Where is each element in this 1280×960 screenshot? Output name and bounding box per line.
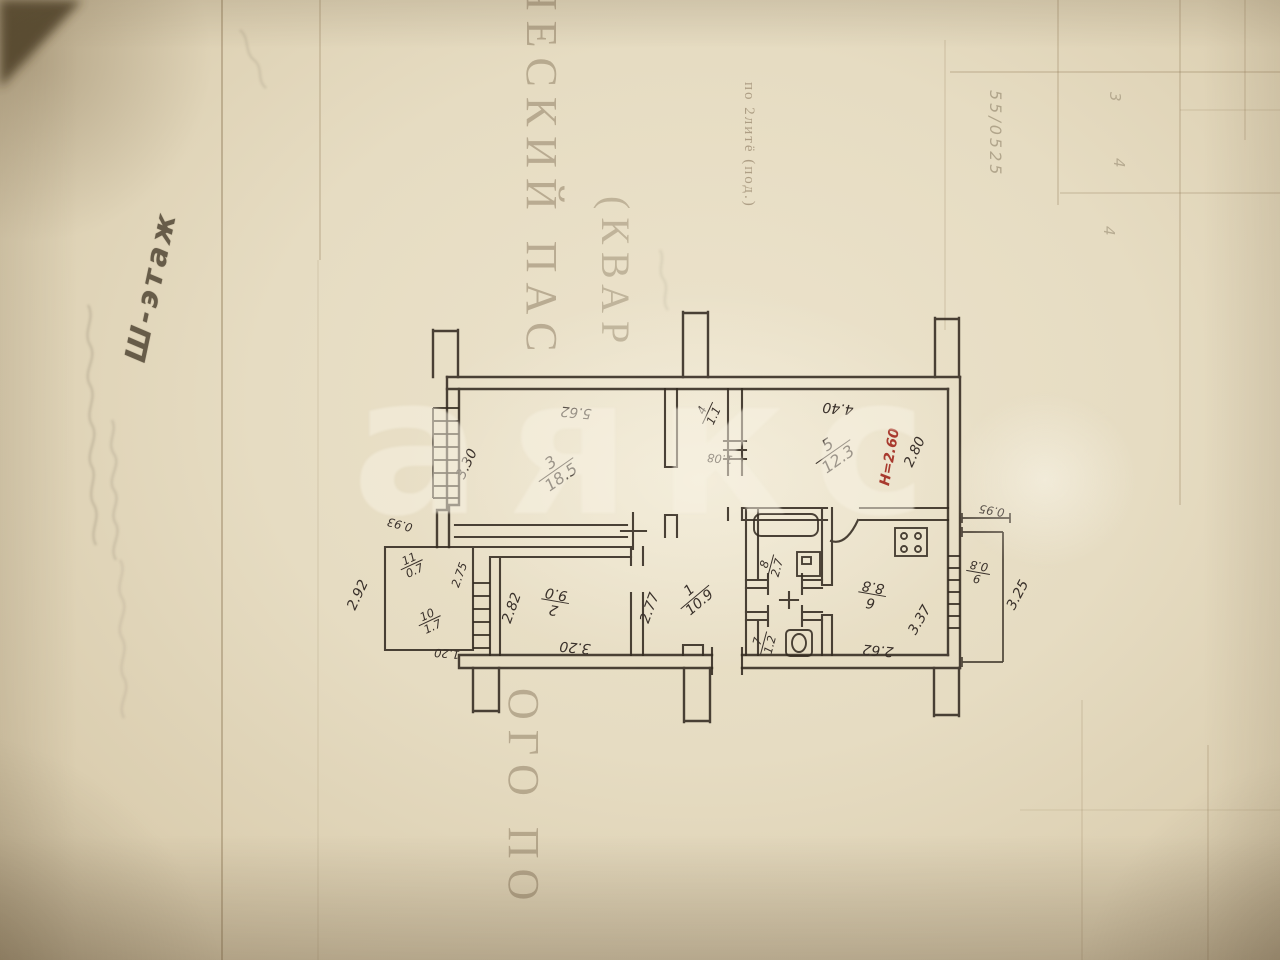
room-label-10: 10 1.7 <box>414 604 447 638</box>
room-label-4: 4 1.1 <box>691 397 725 430</box>
dimension-label: 0.93 <box>386 515 414 533</box>
height-mark: H=2.60 <box>878 427 902 487</box>
room-label-3: 3 18.5 <box>529 444 583 497</box>
photographed-floor-plan-document: { "document": { "floor_note": "Ш-этаж", … <box>0 0 1280 960</box>
room-area: 2.7 <box>767 554 786 581</box>
room-label-5: 5 12.3 <box>806 426 860 479</box>
dimension-label: 4.40 <box>822 400 854 417</box>
room-area: 9.0 <box>541 583 572 604</box>
dimension-label: 3.25 <box>1005 578 1032 612</box>
dimension-label: 3.37 <box>906 603 934 637</box>
room-area: 1.2 <box>760 631 779 658</box>
room-number: 6 <box>863 593 878 610</box>
dimension-label: 5.62 <box>560 404 592 421</box>
dimension-label: 3.20 <box>559 639 591 656</box>
dimension-label: 2.80 <box>902 435 928 469</box>
dimension-label: 0.95 <box>978 502 1005 518</box>
room-label-2: 2 9.0 <box>538 583 571 619</box>
room-label-6: 6 8.8 <box>855 576 888 612</box>
dimension-label: 2.75 <box>450 561 470 589</box>
room-label-8: 8 2.7 <box>755 551 786 581</box>
room-label-1: 1 10.9 <box>671 573 720 621</box>
dimension-label: 2.92 <box>345 578 371 612</box>
dimension-label: 3.30 <box>454 447 480 481</box>
dimension-label: 2.82 <box>500 591 524 625</box>
room-number: 2 <box>546 600 561 617</box>
dimension-label: 2.77 <box>638 591 662 625</box>
plan-labels: 3.30 5.62 1.08 4.40 2.80 0.93 2.75 1.20 … <box>0 0 1280 960</box>
room-number: 9 <box>970 572 983 586</box>
dimension-label: 2.62 <box>862 642 894 659</box>
room-area: 0.8 <box>966 557 992 574</box>
room-area: 8.8 <box>858 576 889 597</box>
dimension-label: 1.08 <box>707 451 734 465</box>
room-label-7: 7 1.2 <box>748 628 779 658</box>
room-label-11: 11 0.7 <box>396 548 429 582</box>
room-label-9-balcony: 9 0.8 <box>964 557 992 587</box>
dimension-label: 1.20 <box>434 646 461 660</box>
